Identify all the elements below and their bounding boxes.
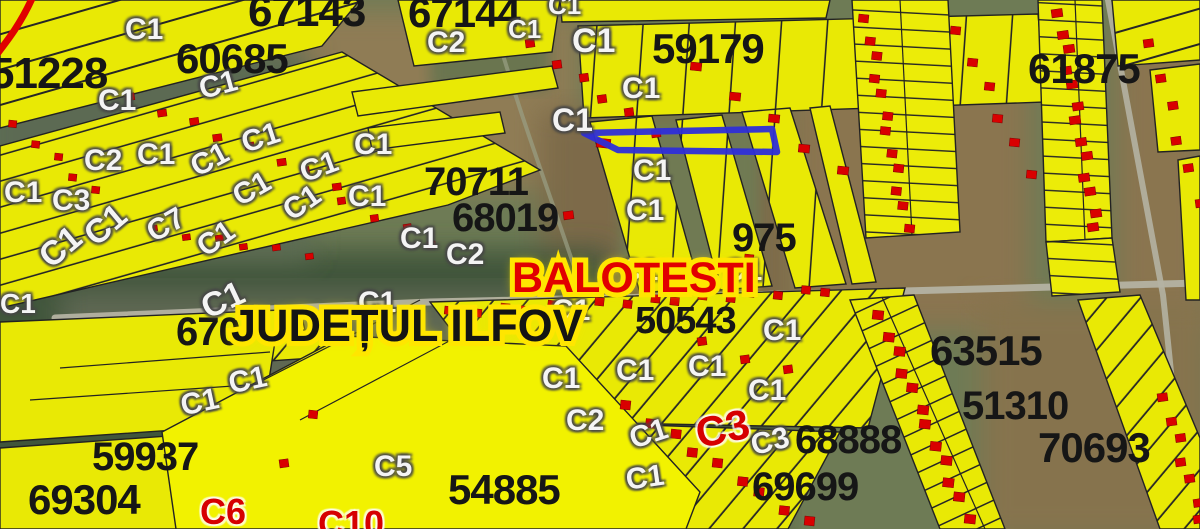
- satellite-parcel-layer: [0, 0, 1200, 529]
- cadastral-map[interactable]: 5122860685671436714459179618757071168019…: [0, 0, 1200, 529]
